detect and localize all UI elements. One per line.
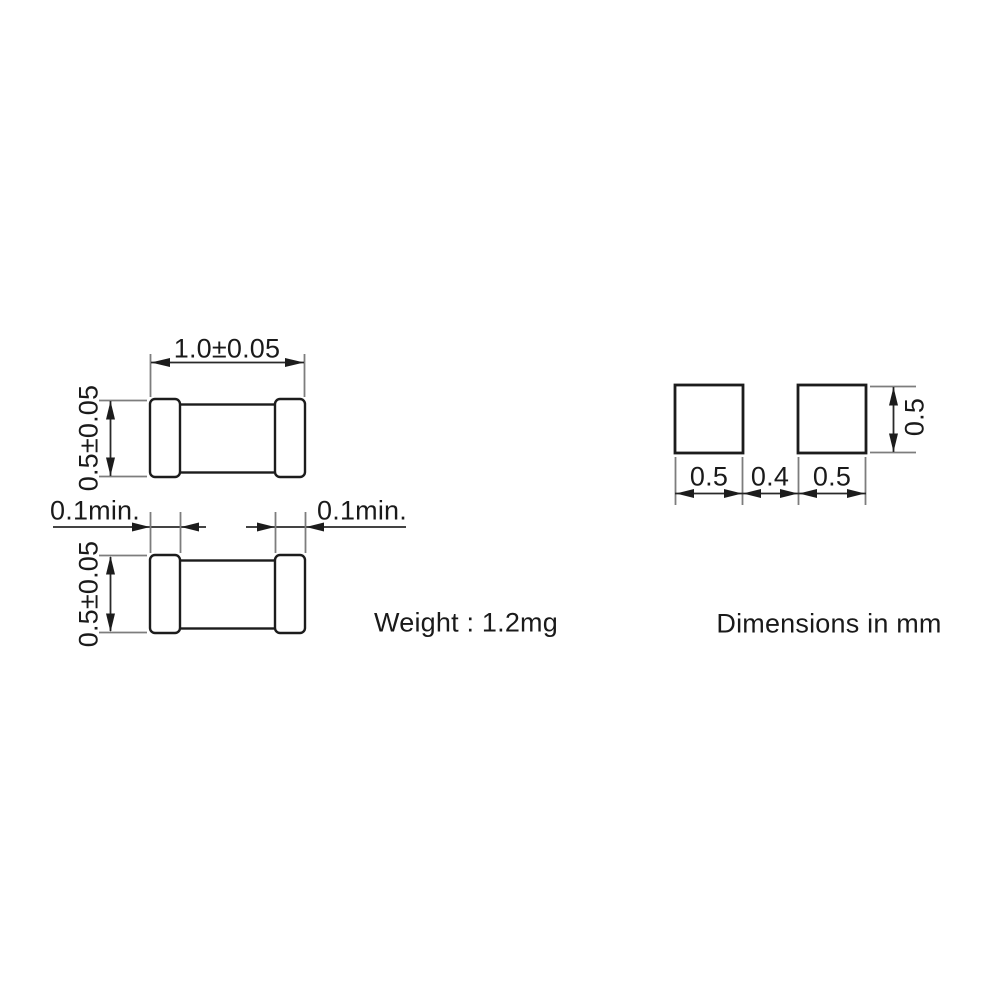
band-right-dimension-label: 0.1min.	[317, 496, 407, 527]
chip-terminal-right	[275, 555, 305, 633]
chip-bottom-view	[150, 555, 305, 633]
component-dimension-drawing: 1.0±0.05 0.5±0.05 0.1min. 0.1min. 0.5±0.…	[0, 0, 1000, 1000]
arrow-down-icon	[106, 614, 115, 633]
drawing-linework	[0, 0, 1000, 1000]
length-dimension-label: 1.0±0.05	[174, 334, 281, 365]
arrow-left-icon	[151, 358, 170, 367]
land-pad-right	[798, 385, 866, 453]
top-view-height-dimension	[99, 401, 147, 477]
chip-terminal-right	[275, 399, 305, 477]
chip-top-view	[150, 399, 305, 477]
arrow-right-icon	[285, 358, 304, 367]
land-pattern-pads	[675, 385, 866, 453]
land-pad-left	[675, 385, 743, 453]
arrow-left-icon	[181, 523, 199, 532]
pad-right-width-label: 0.5	[813, 462, 851, 493]
chip-terminal-left	[150, 399, 180, 477]
pad-left-width-label: 0.5	[690, 462, 728, 493]
bottom-height-dimension-label: 0.5±0.05	[74, 541, 105, 648]
arrow-down-icon	[106, 458, 115, 477]
arrow-down-icon	[889, 434, 898, 453]
chip-terminal-left	[150, 555, 180, 633]
arrow-up-icon	[106, 401, 115, 420]
arrow-up-icon	[106, 556, 115, 575]
chip-body	[179, 561, 276, 629]
chip-body	[179, 405, 276, 473]
arrow-up-icon	[889, 387, 898, 406]
bottom-view-height-dimension	[99, 556, 147, 633]
top-height-dimension-label: 0.5±0.05	[74, 385, 105, 492]
pad-gap-label: 0.4	[751, 462, 789, 493]
units-note: Dimensions in mm	[716, 609, 941, 640]
arrow-right-icon	[257, 523, 275, 532]
weight-note: Weight : 1.2mg	[374, 608, 558, 639]
pad-height-label: 0.5	[900, 398, 931, 436]
band-left-dimension-label: 0.1min.	[50, 496, 140, 527]
